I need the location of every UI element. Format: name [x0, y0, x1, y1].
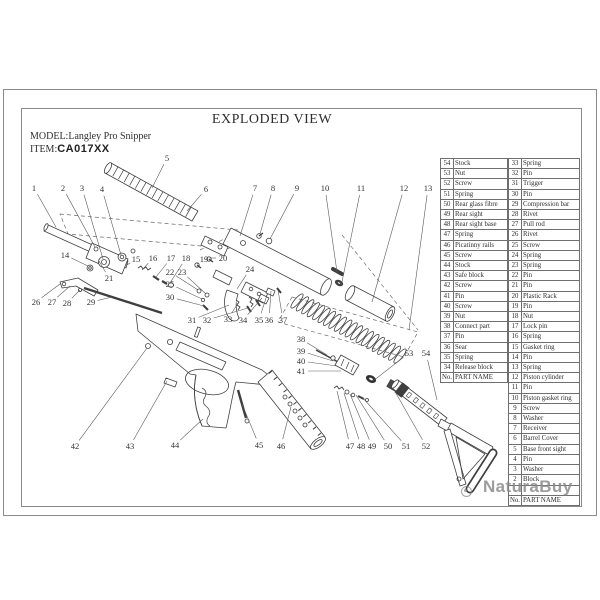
part-number-cell: 47	[441, 230, 454, 240]
callout-number: 7	[253, 183, 257, 193]
part-name-cell: Pin	[454, 332, 508, 342]
part-number-cell: 37	[441, 332, 454, 342]
part-name-cell: Rivet	[522, 210, 580, 220]
table-row: 4Pin	[509, 454, 580, 464]
part-name-cell: PART NAME	[454, 373, 508, 383]
part-name-cell: Base front sight	[522, 444, 580, 454]
table-row: 20Plastic Rack	[509, 291, 580, 301]
part-number-cell: 18	[509, 312, 522, 322]
table-row: 39Nut	[441, 312, 508, 322]
table-row: 33Spring	[509, 159, 580, 169]
table-row: 45Screw	[441, 250, 508, 260]
callout-number: 14	[61, 250, 70, 260]
part-name-cell: Spring	[454, 230, 508, 240]
callout-number: 20	[219, 253, 228, 263]
part-name-cell: Screw	[454, 281, 508, 291]
callout-number: 31	[188, 315, 197, 325]
callout-number: 6	[204, 184, 208, 194]
part-name-cell: Release block	[454, 363, 508, 373]
part-number-cell: 4	[509, 454, 522, 464]
part-name-cell: Sear	[454, 342, 508, 352]
part-number-cell: 42	[441, 281, 454, 291]
part-number-cell: 29	[509, 199, 522, 209]
receiver-part	[223, 228, 334, 297]
part-name-cell: Compression bar	[522, 199, 580, 209]
part-name-cell: Spring	[522, 159, 580, 169]
part-number-cell: 51	[441, 189, 454, 199]
part-number-cell: 49	[441, 210, 454, 220]
callout-number: 53	[405, 348, 414, 358]
part-name-cell: Pin	[454, 291, 508, 301]
callout-number: 44	[171, 440, 180, 450]
naturabuy-logo-icon	[461, 486, 472, 497]
table-row: 51Spring	[441, 189, 508, 199]
table-row: 54Stock	[441, 159, 508, 169]
part-number-cell: 52	[441, 179, 454, 189]
part-number-cell: 33	[509, 159, 522, 169]
table-row: 50Rear glass fibre	[441, 199, 508, 209]
part-number-cell: 9	[509, 403, 522, 413]
callout-number: 48	[357, 441, 366, 451]
part-number-cell: 23	[509, 261, 522, 271]
part-number-cell: 21	[509, 281, 522, 291]
callout-number: 18	[182, 253, 191, 263]
part-name-cell: Nut	[454, 169, 508, 179]
callout-number: 15	[132, 254, 141, 264]
part-name-cell: Stock	[454, 261, 508, 271]
part-name-cell: Rear sight	[454, 210, 508, 220]
table-row: 36Sear	[441, 342, 508, 352]
part-name-cell: Washer	[522, 465, 580, 475]
callout-number: 27	[48, 297, 57, 307]
part-number-cell: 28	[509, 210, 522, 220]
callout-number: 45	[255, 440, 264, 450]
part-name-cell: Safe block	[454, 271, 508, 281]
callout-number: 50	[384, 441, 393, 451]
part-number-cell: 14	[509, 352, 522, 362]
callout-number: 17	[167, 253, 176, 263]
part-name-cell: Pin	[522, 301, 580, 311]
table-row: 32Pin	[509, 169, 580, 179]
part-number-cell: 35	[441, 352, 454, 362]
callout-number: 34	[239, 315, 248, 325]
part-number-cell: 10	[509, 393, 522, 403]
part-number-cell: 15	[509, 342, 522, 352]
part-name-cell: Pin	[522, 271, 580, 281]
table-row: 31Trigger	[509, 179, 580, 189]
part-name-cell: Rear sight base	[454, 220, 508, 230]
callout-number: 42	[71, 441, 80, 451]
callout-number: 12	[400, 183, 409, 193]
callout-number: 8	[271, 183, 275, 193]
cocking-pin-part	[238, 390, 249, 423]
table-row: 30Pin	[509, 189, 580, 199]
part-name-cell: Screw	[454, 179, 508, 189]
table-row: 10Piston gasket ring	[509, 393, 580, 403]
table-row: 42Screw	[441, 281, 508, 291]
table-row: 16Spring	[509, 332, 580, 342]
callout-number: 13	[424, 183, 433, 193]
table-row: 44Stock	[441, 261, 508, 271]
part-name-cell: Pin	[522, 383, 580, 393]
part-name-cell: Rivet	[522, 230, 580, 240]
callout-number: 3	[80, 183, 84, 193]
table-row: 5Base front sight	[509, 444, 580, 454]
callout-number: 24	[246, 264, 255, 274]
part-name-cell: Connect part	[454, 322, 508, 332]
main-spring-part	[289, 292, 408, 364]
part-name-cell: Spring	[454, 189, 508, 199]
part-name-cell: Trigger	[522, 179, 580, 189]
part-number-cell: 6	[509, 434, 522, 444]
callout-number: 52	[422, 441, 431, 451]
part-name-cell: Pin	[522, 281, 580, 291]
part-number-cell: 20	[509, 291, 522, 301]
part-name-cell: Spring	[522, 332, 580, 342]
part-name-cell: Spring	[522, 261, 580, 271]
part-number-cell: 31	[509, 179, 522, 189]
part-number-cell: 45	[441, 250, 454, 260]
part-name-cell: Nut	[522, 312, 580, 322]
part-number-cell: 25	[509, 240, 522, 250]
callout-number: 46	[277, 441, 286, 451]
table-row: 11Pin	[509, 383, 580, 393]
table-row: 28Rivet	[509, 210, 580, 220]
callout-number: 22	[166, 267, 175, 277]
callout-number: 37	[279, 315, 288, 325]
part-number-cell: 7	[509, 424, 522, 434]
table-row: 25Screw	[509, 240, 580, 250]
table-row: 14Pin	[509, 352, 580, 362]
part-number-cell: 12	[509, 373, 522, 383]
part-number-cell: 8	[509, 414, 522, 424]
part-name-cell: Screw	[522, 403, 580, 413]
part-name-cell: Nut	[454, 312, 508, 322]
part-number-cell: 54	[441, 159, 454, 169]
part-number-cell: 53	[441, 169, 454, 179]
part-name-cell: Pin	[522, 454, 580, 464]
table-row: 26Rivet	[509, 230, 580, 240]
callout-number: 4	[100, 184, 105, 194]
table-row: 29Compression bar	[509, 199, 580, 209]
part-number-cell: 3	[509, 465, 522, 475]
part-name-cell: Washer	[522, 414, 580, 424]
callout-number: 9	[295, 183, 299, 193]
part-number-cell: 43	[441, 271, 454, 281]
part-name-cell: Lock pin	[522, 322, 580, 332]
callout-number: 47	[346, 441, 355, 451]
table-row: 46Picatinny rails	[441, 240, 508, 250]
grip-frame-part	[136, 314, 272, 428]
parts-table-header-row: No.PART NAME	[441, 373, 508, 383]
callout-number: 28	[63, 298, 72, 308]
callout-number: 21	[105, 273, 114, 283]
part-name-cell: Spring	[522, 250, 580, 260]
callout-number: 36	[265, 315, 274, 325]
table-row: 35Spring	[441, 352, 508, 362]
part-number-cell: 13	[509, 363, 522, 373]
trigger-group-parts	[197, 270, 281, 321]
part-number-cell: 38	[441, 322, 454, 332]
table-row: 22Pin	[509, 271, 580, 281]
barrel-cover-part	[103, 162, 198, 221]
table-row: 37Pin	[441, 332, 508, 342]
table-row: 18Nut	[509, 312, 580, 322]
callout-number: 25	[166, 279, 175, 289]
callout-number: 49	[368, 441, 377, 451]
table-row: 8Washer	[509, 414, 580, 424]
table-row: 12Piston cylinder	[509, 373, 580, 383]
part-number-cell: 27	[509, 220, 522, 230]
callout-number: 1	[32, 183, 36, 193]
callout-number: 29	[87, 297, 96, 307]
stock-part	[390, 379, 493, 489]
callout-number: 30	[166, 292, 175, 302]
part-number-cell: 24	[509, 250, 522, 260]
part-name-cell: Receiver	[522, 424, 580, 434]
part-name-cell: Stock	[454, 159, 508, 169]
part-number-cell: 44	[441, 261, 454, 271]
pin-washer-parts	[333, 269, 344, 287]
callout-number: 10	[321, 183, 330, 193]
part-name-cell: Pin	[522, 189, 580, 199]
table-row: 19Pin	[509, 301, 580, 311]
compression-tube-part	[258, 370, 328, 452]
callout-number: 16	[149, 253, 158, 263]
part-name-cell: Pin	[522, 169, 580, 179]
callout-number: 38	[297, 334, 306, 344]
table-row: 23Spring	[509, 261, 580, 271]
callout-number: 51	[402, 441, 411, 451]
table-row: 47Spring	[441, 230, 508, 240]
part-name-cell: Screw	[454, 301, 508, 311]
part-number-cell: 5	[509, 444, 522, 454]
callout-number: 35	[255, 315, 264, 325]
part-number-cell: 40	[441, 301, 454, 311]
part-name-cell: Screw	[454, 250, 508, 260]
part-number-cell: 11	[509, 383, 522, 393]
exploded-view-sheet: EXPLODED VIEW MODEL:Langley Pro Snipper …	[0, 0, 600, 600]
parts-table-left: 54Stock53Nut52Screw51Spring50Rear glass …	[440, 158, 508, 383]
part-number-cell: No.	[441, 373, 454, 383]
part-name-cell: Plastic Rack	[522, 291, 580, 301]
parts-table-right: 33Spring32Pin31Trigger30Pin29Compression…	[508, 158, 580, 506]
part-name-cell: Piston cylinder	[522, 373, 580, 383]
part-number-cell: 17	[509, 322, 522, 332]
part-number-cell: 34	[441, 363, 454, 373]
callout-number: 40	[297, 356, 306, 366]
part-number-cell: 50	[441, 199, 454, 209]
table-row: 49Rear sight	[441, 210, 508, 220]
part-number-cell: 19	[509, 301, 522, 311]
table-row: 38Connect part	[441, 322, 508, 332]
table-row: 40Screw	[441, 301, 508, 311]
part-name-cell: Gasket ring	[522, 342, 580, 352]
part-number-cell: 22	[509, 271, 522, 281]
part-name-cell: Pin	[522, 352, 580, 362]
table-row: 41Pin	[441, 291, 508, 301]
part-number-cell: 30	[509, 189, 522, 199]
piston-cylinder-part	[343, 284, 397, 322]
part-name-cell: Rear glass fibre	[454, 199, 508, 209]
table-row: 34Release block	[441, 363, 508, 373]
part-number-cell: 46	[441, 240, 454, 250]
table-row: 53Nut	[441, 169, 508, 179]
part-number-cell: 39	[441, 312, 454, 322]
table-row: 21Pin	[509, 281, 580, 291]
part-name-cell: Screw	[522, 240, 580, 250]
callout-number: 23	[178, 267, 187, 277]
callout-number: 33	[224, 314, 233, 324]
table-row: 48Rear sight base	[441, 220, 508, 230]
part-name-cell: Spring	[454, 352, 508, 362]
table-row: 6Barrel Cover	[509, 434, 580, 444]
part-number-cell: 26	[509, 230, 522, 240]
table-row: 7Receiver	[509, 424, 580, 434]
part-number-cell: 48	[441, 220, 454, 230]
part-name-cell: Picatinny rails	[454, 240, 508, 250]
callout-number: 5	[165, 153, 169, 163]
table-row: 27Pull rod	[509, 220, 580, 230]
table-row: 52Screw	[441, 179, 508, 189]
callout-number: 54	[422, 348, 431, 358]
callout-number: 26	[32, 297, 41, 307]
table-row: 15Gasket ring	[509, 342, 580, 352]
table-row: 9Screw	[509, 403, 580, 413]
part-name-cell: Piston gasket ring	[522, 393, 580, 403]
part-number-cell: 16	[509, 332, 522, 342]
table-row: 3Washer	[509, 465, 580, 475]
callout-number: 41	[297, 366, 306, 376]
callout-number: 11	[357, 183, 365, 193]
lever-and-rod-parts	[60, 278, 162, 313]
callout-number: 32	[203, 315, 212, 325]
table-row: 24Spring	[509, 250, 580, 260]
part-number-cell: 41	[441, 291, 454, 301]
callout-number: 19	[200, 254, 209, 264]
naturabuy-watermark: NaturaBuy	[483, 477, 573, 497]
callout-number: 43	[126, 441, 135, 451]
part-number-cell: 32	[509, 169, 522, 179]
part-number-cell: 36	[441, 342, 454, 352]
part-name-cell: Spring	[522, 363, 580, 373]
callout-number: 2	[61, 183, 65, 193]
part-name-cell: Pull rod	[522, 220, 580, 230]
callout-number: 39	[297, 346, 306, 356]
table-row: 13Spring	[509, 363, 580, 373]
part-name-cell: Barrel Cover	[522, 434, 580, 444]
table-row: 17Lock pin	[509, 322, 580, 332]
table-row: 43Safe block	[441, 271, 508, 281]
